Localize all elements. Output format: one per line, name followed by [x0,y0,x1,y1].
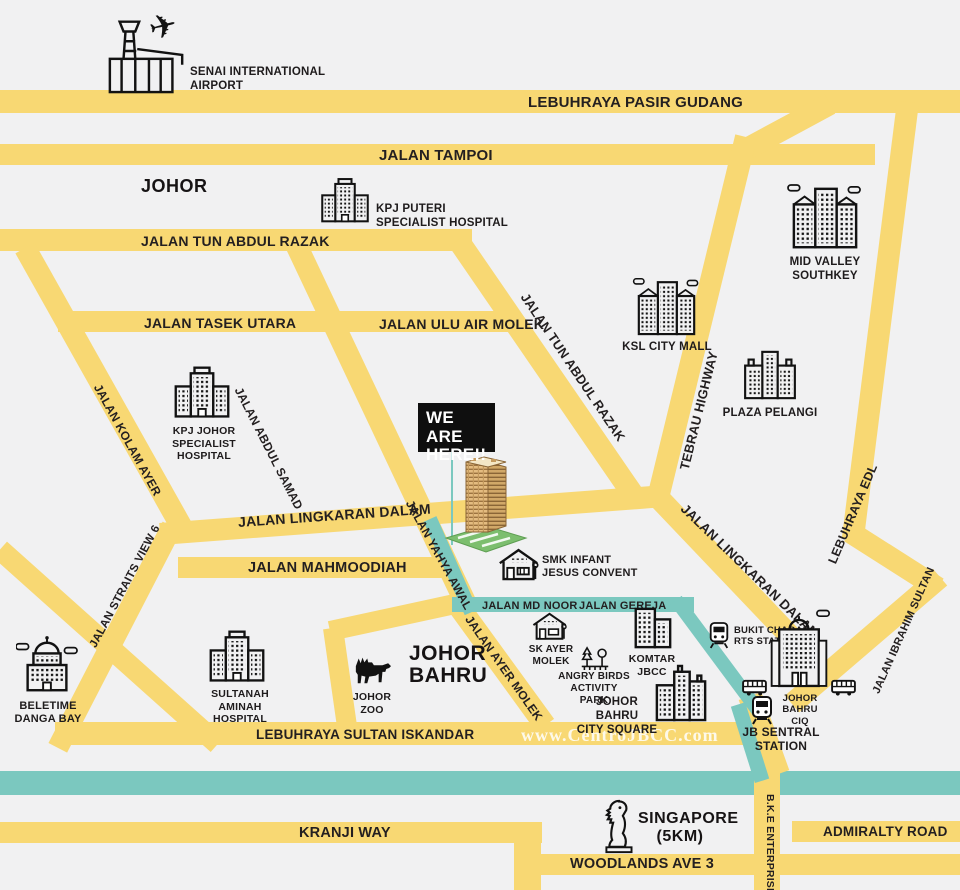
bus-icon [831,678,856,697]
airport-icon: ✈ [104,8,190,96]
label-line: ANGRY BIRDS [558,671,630,682]
we-are-here-marker: WE ARE HERE!! [418,403,495,452]
mall-icon [653,664,709,722]
label-line: JB SENTRAL [742,725,819,739]
park-trees-icon [580,645,610,672]
hospital-icon [172,365,232,421]
label-line: PLAZA PELANGI [723,407,818,419]
label-line: JOHOR BAHRU [596,696,639,722]
road-label-tasek-utara: JALAN TASEK UTARA [144,315,296,331]
label-line: SULTANAH AMINAH [211,688,269,713]
train-icon [749,695,775,725]
label-line: AIRPORT [190,80,243,92]
marker-line: HERE!! [426,445,486,464]
hospital-icon [207,628,267,686]
landmark-label-sultanah: SULTANAH AMINAH HOSPITAL [192,688,288,726]
label-line: JOHOR [353,691,391,703]
landmark-label-mid-valley: MID VALLEY SOUTHKEY [782,256,868,284]
region-label-singapore: SINGAPORE (5KM) [638,810,722,847]
landmark-label-smk: SMK INFANT JESUS CONVENT [542,554,638,580]
landmark-label-senai: SENAI INTERNATIONAL AIRPORT [190,66,325,94]
region-label-johor: JOHOR [141,176,208,197]
merlion-icon [598,798,638,856]
customs-building-icon [766,608,832,696]
landmark-label-kpj-puteri: KPJ PUTERI SPECIALIST HOSPITAL [376,203,508,231]
train-icon [707,621,731,649]
region-label-line: (5KM) [657,828,704,845]
landmark-label-plaza-pelangi: PLAZA PELANGI [722,407,818,421]
label-line: MOLEK [532,656,569,667]
label-line: SOUTHKEY [792,270,858,282]
label-line: KPJ JOHOR [173,425,235,437]
road-label-mahmoodiah: JALAN MAHMOODIAH [248,560,407,576]
label-line: SENAI INTERNATIONAL [190,66,325,78]
road-label-pasir-gudang: LEBUHRAYA PASIR GUDANG [528,94,743,111]
road-label-tampoi: JALAN TAMPOI [379,147,493,164]
marker-line: WE ARE [426,408,463,446]
landmark-label-sk-ayer: SK AYER MOLEK [526,644,576,668]
road-kranji-way [0,822,542,843]
road-label-admiralty: ADMIRALTY ROAD [823,824,948,839]
moose-icon [351,650,393,688]
road-label-ulu-air-molek: JALAN ULU AIR MOLEK [379,316,544,332]
label-line: SK AYER [529,644,574,655]
road-lebuhraya-edl [842,101,919,541]
label-line: KSL CITY MALL [622,341,712,353]
label-line: ZOO [360,704,383,716]
dome-building-icon [16,634,78,698]
label-line: MID VALLEY [790,256,861,268]
johor-bahru-location-map: LEBUHRAYA PASIR GUDANG JALAN TAMPOI JALA… [0,0,960,890]
hospital-icon [319,175,371,227]
label-line: SPECIALIST HOSPITAL [376,217,508,229]
label-line: CITY SQUARE [577,724,658,736]
label-line: JESUS CONVENT [542,567,638,579]
label-line: SPECIALIST HOSPITAL [172,438,236,463]
road-label-sultan-iskandar: LEBUHRAYA SULTAN ISKANDAR [256,727,474,742]
landmark-label-jb-sentral: JB SENTRAL STATION [742,725,820,754]
mall-icon [740,346,800,404]
mall-icon [786,183,864,255]
landmark-label-city-square: JOHOR BAHRU CITY SQUARE [575,696,659,737]
landmark-label-beletime: BELETIME DANGA BAY [14,700,82,726]
road-label-woodlands: WOODLANDS AVE 3 [570,856,714,872]
region-label-johor-bahru: JOHOR BAHRU [409,643,487,687]
label-line: STATION [755,739,807,753]
road-label-tun-abdul-razak: JALAN TUN ABDUL RAZAK [141,233,330,249]
label-line: DANGA BAY [15,713,82,725]
road-label-kranji-way: KRANJI WAY [299,825,391,841]
tower-block-icon [628,606,676,650]
road-west-of-junction [328,594,457,641]
region-label-line: SINGAPORE [638,810,739,827]
region-label-line: JOHOR [409,642,486,665]
road-label-bke-enterprise: B.K.E ENTERPRISE [764,794,776,890]
landmark-label-ksl: KSL CITY MALL [616,341,718,355]
label-line: BELETIME [19,700,76,712]
label-line: SMK INFANT [542,554,611,566]
landmark-label-kpj-johor: KPJ JOHOR SPECIALIST HOSPITAL [154,425,254,463]
johor-strait-band [0,771,960,795]
landmark-label-ciq: JOHOR BAHRU CIQ [771,693,829,727]
label-line: KPJ PUTERI [376,203,446,215]
label-line: HOSPITAL [213,713,267,725]
svg-text:✈: ✈ [145,8,181,49]
school-icon [531,611,568,644]
mall-icon [629,277,704,341]
region-label-line: BAHRU [409,664,487,687]
label-line: JOHOR BAHRU [782,693,817,715]
landmark-label-johor-zoo: JOHOR ZOO [350,691,394,716]
